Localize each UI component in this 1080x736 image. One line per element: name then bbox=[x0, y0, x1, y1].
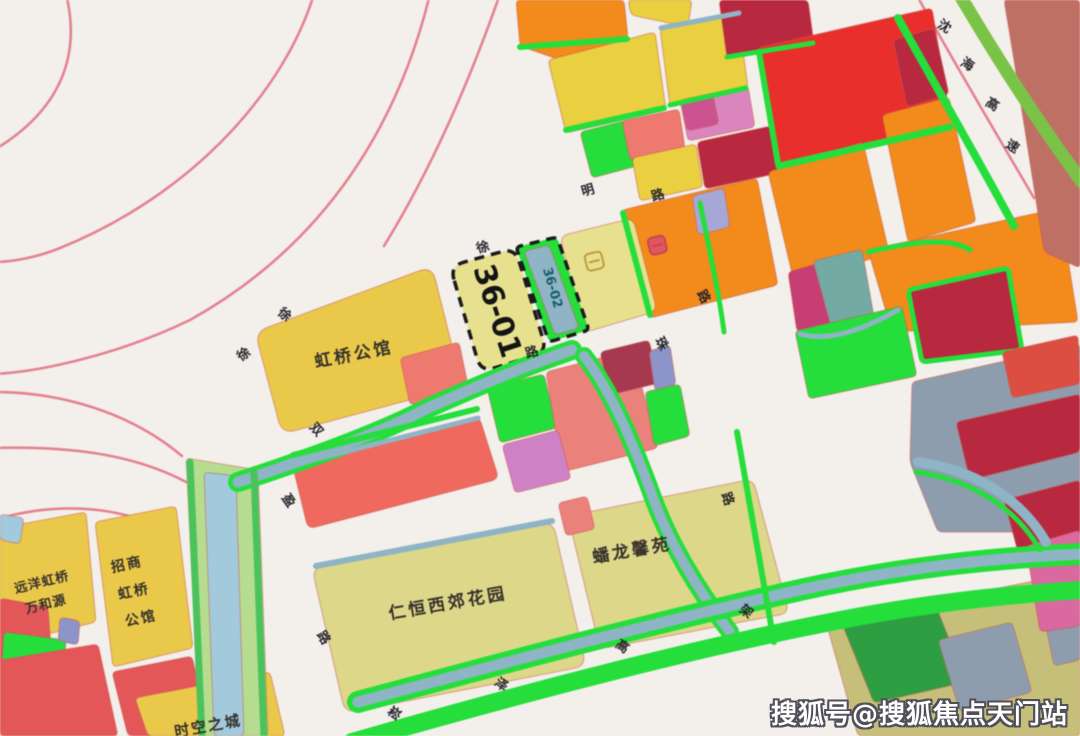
zoning-map: 沈海高速明路路珠路徐徐双盈路徐路崧泽高架虹桥公馆仁恒西郊花园蟠龙馨苑远洋虹桥万和… bbox=[0, 0, 1080, 736]
zoning-map-screenshot: 沈海高速明路路珠路徐徐双盈路徐路崧泽高架虹桥公馆仁恒西郊花园蟠龙馨苑远洋虹桥万和… bbox=[0, 0, 1080, 736]
parcel-lavender bbox=[58, 618, 79, 644]
parcel-paleblue bbox=[0, 515, 23, 543]
parcel-lavender bbox=[650, 346, 676, 390]
parcel-red bbox=[0, 645, 117, 736]
building-icon-red bbox=[647, 235, 668, 256]
watermark: 搜狐号@搜狐焦点天门站 bbox=[771, 694, 1068, 731]
parcel-salmon bbox=[559, 497, 594, 535]
parcel-lavender bbox=[693, 189, 730, 234]
